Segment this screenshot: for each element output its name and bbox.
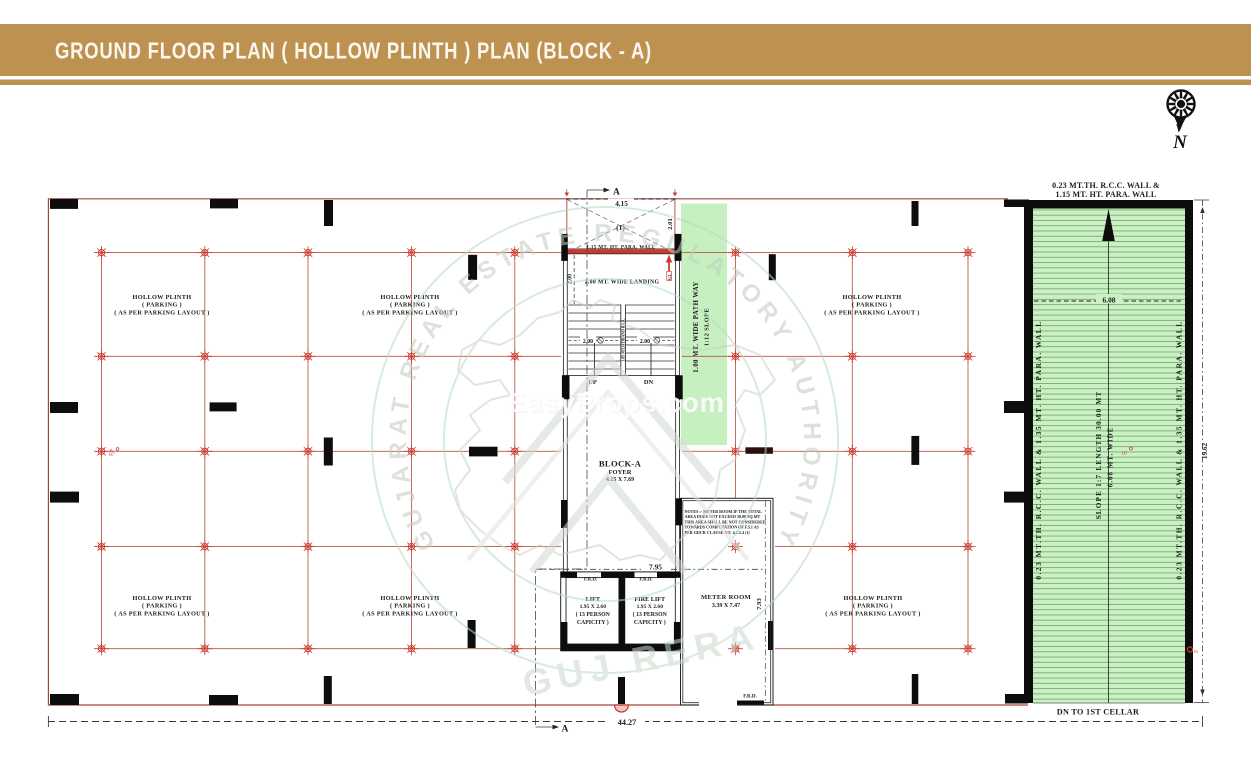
svg-text:N: N [1172, 132, 1188, 153]
svg-text:( PARKING ): ( PARKING ) [142, 603, 182, 610]
svg-text:( AS PER PARKING LAYOUT ): ( AS PER PARKING LAYOUT ) [114, 310, 209, 317]
svg-text:F.R.D.: F.R.D. [743, 695, 757, 700]
svg-text:EasyProps.com: EasyProps.com [508, 387, 725, 418]
svg-text:( AS PER PARKING LAYOUT ): ( AS PER PARKING LAYOUT ) [824, 310, 919, 317]
svg-text:( PARKING ): ( PARKING ) [853, 603, 893, 610]
svg-text:HOLLOW PLINTH: HOLLOW PLINTH [133, 294, 192, 301]
svg-text:( AS PER PARKING LAYOUT ): ( AS PER PARKING LAYOUT ) [362, 611, 457, 618]
svg-text:0.23 MT.TH. R.C.C. WALL & 1.35: 0.23 MT.TH. R.C.C. WALL & 1.35 MT. HT. P… [1034, 320, 1043, 579]
svg-text:2.00: 2.00 [583, 339, 593, 345]
svg-text:1.95 X 2.60: 1.95 X 2.60 [637, 604, 664, 610]
svg-text:( 13 PERSON: ( 13 PERSON [576, 611, 611, 618]
svg-text:1.95 X 2.60: 1.95 X 2.60 [580, 604, 607, 610]
svg-text:HOLLOW PLINTH: HOLLOW PLINTH [844, 595, 903, 602]
svg-text:A: A [613, 188, 620, 198]
svg-text:3.39 X 7.47: 3.39 X 7.47 [712, 603, 740, 609]
svg-text:FOYER: FOYER [608, 469, 631, 476]
svg-text:1.15 MT. HT. PARA. WALL: 1.15 MT. HT. PARA. WALL [1056, 190, 1157, 199]
svg-text:HOLLOW PLINTH: HOLLOW PLINTH [381, 595, 440, 602]
svg-text:2.01: 2.01 [667, 218, 674, 230]
svg-text:( PARKING ): ( PARKING ) [852, 302, 892, 309]
svg-text:07: 07 [1122, 451, 1128, 457]
svg-text:7.93: 7.93 [756, 598, 763, 610]
svg-text:CAPICITY ): CAPICITY ) [634, 619, 666, 626]
svg-text:19.62: 19.62 [1201, 443, 1209, 460]
svg-text:0.23 MT.TH. R.C.C. WALL & 1.35: 0.23 MT.TH. R.C.C. WALL & 1.35 MT. HT. P… [1175, 320, 1184, 579]
svg-text:HOLLOW PLINTH: HOLLOW PLINTH [133, 595, 192, 602]
svg-text:1.00 MT. WIDE PATH WAY: 1.00 MT. WIDE PATH WAY [693, 281, 700, 372]
svg-text:( AS PER PARKING LAYOUT ): ( AS PER PARKING LAYOUT ) [825, 611, 920, 618]
svg-text:( PARKING ): ( PARKING ) [142, 302, 182, 309]
svg-text:DN TO 1ST CELLAR: DN TO 1ST CELLAR [1057, 708, 1139, 717]
svg-text:6.08: 6.08 [1103, 296, 1116, 305]
svg-text:( PARKING ): ( PARKING ) [390, 603, 430, 610]
svg-text:2.00: 2.00 [640, 339, 650, 345]
svg-text:m: m [1194, 650, 1198, 655]
svg-text:DN: DN [644, 379, 654, 386]
svg-text:F.R.D.: F.R.D. [639, 578, 652, 583]
svg-text:HOLLOW PLINTH: HOLLOW PLINTH [381, 294, 440, 301]
svg-text:METER ROOM: METER ROOM [701, 594, 752, 601]
svg-text:44.27: 44.27 [618, 718, 636, 727]
svg-text:F.R.D.: F.R.D. [584, 578, 597, 583]
svg-text:7.95: 7.95 [649, 563, 662, 572]
svg-text:BLOCK-A: BLOCK-A [599, 459, 642, 469]
svg-text:07: 07 [109, 452, 115, 458]
svg-text:SLOPE 1:7 LENGTH 30.00 MT: SLOPE 1:7 LENGTH 30.00 MT [1095, 391, 1103, 520]
svg-text:CAPICITY ): CAPICITY ) [577, 619, 609, 626]
svg-text:GROUND FLOOR PLAN ( HOLLOW PLI: GROUND FLOOR PLAN ( HOLLOW PLINTH ) PLAN… [55, 38, 652, 64]
svg-text:( 13 PERSON: ( 13 PERSON [633, 611, 668, 618]
svg-text:PER GDCR CLAUSE NO. 4.2.2.4 (1: PER GDCR CLAUSE NO. 4.2.2.4 (1) [685, 530, 751, 535]
svg-text:6.08 MT. WIDE: 6.08 MT. WIDE [1107, 427, 1115, 488]
svg-text:( PARKING ): ( PARKING ) [390, 302, 430, 309]
svg-text:0.23 MT.TH. R.C.C. WALL &: 0.23 MT.TH. R.C.C. WALL & [1052, 181, 1160, 190]
svg-text:( AS PER PARKING LAYOUT ): ( AS PER PARKING LAYOUT ) [114, 611, 209, 618]
svg-text:A: A [562, 725, 569, 735]
svg-text:HOLLOW PLINTH: HOLLOW PLINTH [843, 294, 902, 301]
